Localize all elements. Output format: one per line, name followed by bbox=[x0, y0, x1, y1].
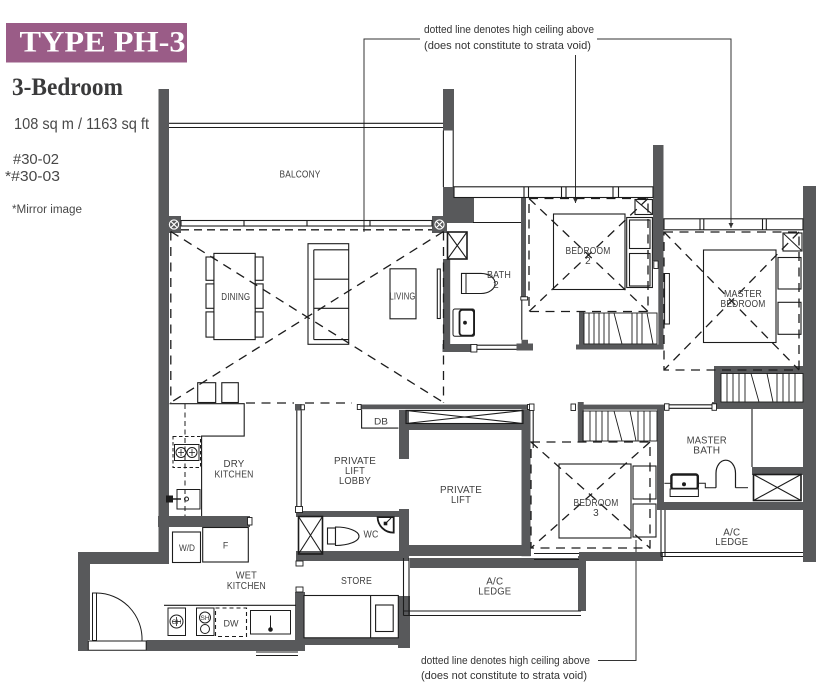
svg-text:2: 2 bbox=[585, 256, 591, 267]
svg-text:GH: GH bbox=[172, 619, 182, 626]
svg-text:3-Bedroom: 3-Bedroom bbox=[12, 74, 123, 101]
svg-text:WET: WET bbox=[236, 571, 257, 582]
svg-text:KITCHEN: KITCHEN bbox=[215, 470, 254, 481]
svg-text:LIFT: LIFT bbox=[451, 495, 471, 506]
svg-text:3: 3 bbox=[593, 508, 599, 519]
svg-text:*Mirror image: *Mirror image bbox=[12, 204, 82, 216]
svg-text:LEDGE: LEDGE bbox=[478, 587, 511, 598]
svg-text:BATH: BATH bbox=[693, 446, 720, 457]
svg-text:F: F bbox=[223, 541, 229, 551]
svg-text:STORE: STORE bbox=[341, 576, 372, 587]
svg-text:LEDGE: LEDGE bbox=[715, 537, 748, 548]
svg-text:LOBBY: LOBBY bbox=[339, 476, 371, 487]
svg-text:dotted line denotes high ceili: dotted line denotes high ceiling above bbox=[421, 655, 590, 667]
svg-text:BATH: BATH bbox=[487, 270, 511, 281]
svg-text:DB: DB bbox=[374, 417, 388, 427]
svg-text:BEDROOM: BEDROOM bbox=[721, 299, 766, 310]
svg-text:DRY: DRY bbox=[224, 459, 245, 470]
svg-text:dotted line denotes high ceili: dotted line denotes high ceiling above bbox=[424, 24, 594, 36]
svg-text:*#30-03: *#30-03 bbox=[5, 169, 60, 185]
svg-text:2: 2 bbox=[493, 280, 499, 291]
svg-text:W/D: W/D bbox=[179, 543, 195, 553]
svg-text:DINING: DINING bbox=[221, 292, 250, 303]
svg-text:TYPE PH-3: TYPE PH-3 bbox=[20, 26, 186, 59]
svg-text:108 sq m / 1163 sq ft: 108 sq m / 1163 sq ft bbox=[14, 116, 150, 133]
svg-text:BALCONY: BALCONY bbox=[280, 170, 321, 181]
svg-text:DW: DW bbox=[224, 619, 240, 629]
svg-text:WC: WC bbox=[364, 530, 379, 541]
svg-text:LIVING: LIVING bbox=[390, 292, 416, 303]
svg-text:(does not constitute to strata: (does not constitute to strata void) bbox=[424, 40, 591, 52]
svg-text:KITCHEN: KITCHEN bbox=[227, 581, 266, 592]
svg-text:#30-02: #30-02 bbox=[13, 152, 59, 168]
svg-text:SH: SH bbox=[200, 615, 209, 622]
svg-text:(does not constitute to strata: (does not constitute to strata void) bbox=[421, 670, 587, 682]
